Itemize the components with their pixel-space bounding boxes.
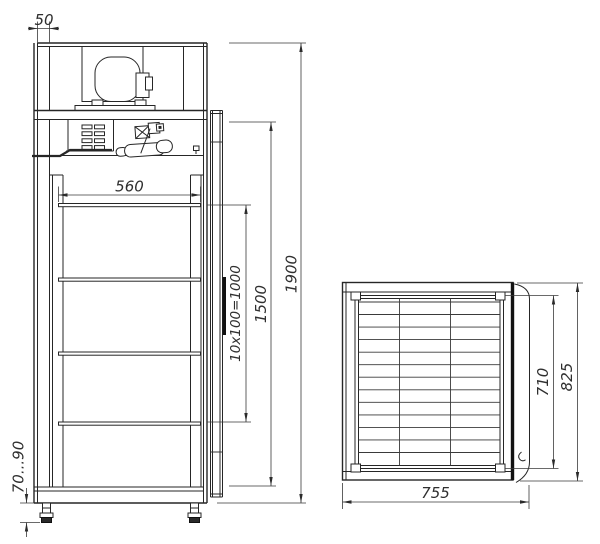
valve-assembly: [114, 122, 173, 158]
dim-overall-width: 755: [343, 483, 530, 509]
door-gasket-detail: [519, 452, 526, 461]
right-wall: [204, 43, 208, 503]
shelf-3: [59, 352, 201, 355]
shelf-4: [59, 422, 201, 425]
compressor-unit: [75, 47, 155, 111]
shelf-1: [59, 204, 201, 207]
leg-left: [40, 503, 53, 523]
top-view: 710 825 755: [343, 283, 584, 510]
top-view-door: [513, 283, 530, 483]
technical-drawing-canvas: 50 560 10x100=1000 1500: [0, 0, 600, 544]
top-separator-band: [34, 111, 207, 120]
top-view-body: [343, 283, 514, 481]
dim-label-overall-depth: 825: [558, 363, 576, 392]
cabinet-top-panel: [38, 43, 208, 47]
dim-label-interior-depth: 710: [534, 368, 552, 397]
compressor-base-plate: [75, 106, 155, 111]
dim-label-overall-height: 1900: [283, 255, 301, 293]
dim-label-leg-height: 70...90: [10, 441, 28, 493]
leg-right: [188, 503, 201, 523]
drawing-sheet: 50 560 10x100=1000 1500: [0, 0, 600, 544]
front-view: 50 560 10x100=1000 1500: [10, 11, 307, 537]
shelves: [59, 204, 201, 426]
front-door-edge: [211, 111, 227, 498]
compressor-foot-left: [92, 100, 103, 106]
wire-shelf: [351, 292, 505, 472]
dim-interior-width: 560: [59, 178, 201, 203]
control-panel: [66, 120, 114, 152]
dim-label-interior-width: 560: [115, 178, 144, 196]
dim-label-interior-height: 1500: [252, 285, 270, 323]
dim-leg-height: 70...90: [10, 441, 41, 537]
door-outer-skin: [515, 284, 530, 483]
base-plinth: [34, 487, 207, 503]
door-handle: [223, 277, 227, 335]
dim-shelf-pitch: 10x100=1000: [207, 205, 251, 422]
dim-label-wall-thickness: 50: [34, 11, 53, 29]
dim-label-overall-width: 755: [421, 484, 450, 502]
compressor-dome: [95, 57, 140, 102]
compressor-foot-right: [135, 100, 146, 106]
shelf-corner-clips: [351, 292, 505, 472]
compressor-terminal-tab: [146, 77, 153, 90]
shelf-2: [59, 278, 201, 281]
dim-label-shelf-pitch: 10x100=1000: [228, 265, 244, 362]
wire-grid: [359, 299, 501, 466]
hinge-bracket: [194, 146, 200, 154]
shelf-posts: [50, 175, 204, 487]
dim-wall-thickness: 50: [28, 11, 59, 43]
left-wall-upper: [34, 43, 50, 503]
